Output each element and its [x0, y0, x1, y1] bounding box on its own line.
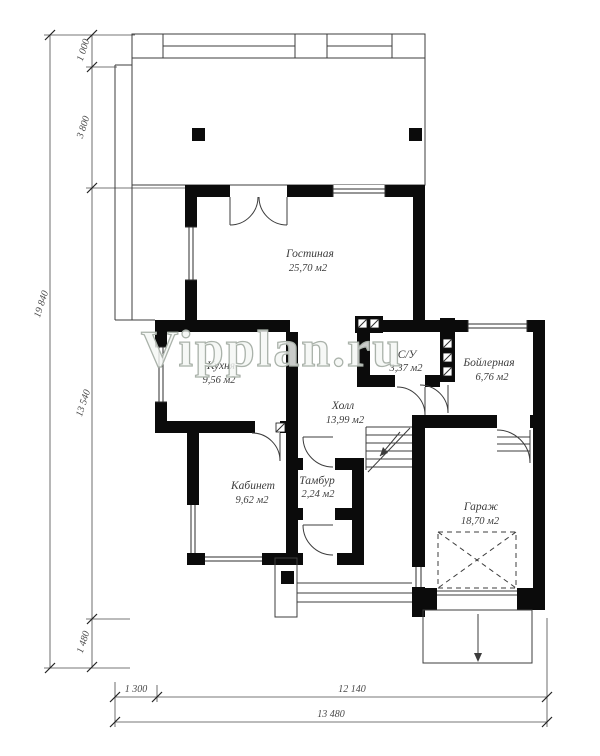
svg-text:Холл: Холл — [331, 400, 354, 412]
window-living-left — [185, 227, 197, 280]
dim-3800: 3 800 — [75, 115, 93, 141]
svg-text:Тамбур: Тамбур — [299, 475, 335, 487]
terrace — [115, 34, 425, 320]
dim-12140: 12 140 — [338, 684, 366, 695]
svg-text:25,70 м2: 25,70 м2 — [289, 263, 328, 274]
floor-plan-canvas: 19 840 1 000 3 800 13 540 1 480 1 300 12… — [0, 0, 600, 756]
svg-text:2,24 м2: 2,24 м2 — [302, 489, 336, 500]
svg-text:9,62 м2: 9,62 м2 — [236, 495, 270, 506]
room-label-living: Гостиная 25,70 м2 — [285, 248, 334, 274]
window-study-left — [187, 505, 199, 553]
svg-text:Кабинет: Кабинет — [230, 480, 275, 492]
svg-text:13,99 м2: 13,99 м2 — [326, 415, 365, 426]
porch — [275, 558, 412, 617]
terrace-column — [192, 128, 205, 141]
staircase — [366, 427, 412, 472]
dim-total-height: 19 840 — [32, 289, 51, 319]
driveway — [423, 610, 532, 663]
window-garage-left — [412, 567, 425, 587]
room-label-hall: Холл 13,99 м2 — [326, 400, 365, 426]
window-study-bottom — [205, 553, 262, 565]
terrace-column — [409, 128, 422, 141]
floor-plan-page: 19 840 1 000 3 800 13 540 1 480 1 300 12… — [0, 0, 600, 756]
svg-text:18,70 м2: 18,70 м2 — [461, 516, 500, 527]
svg-text:Гостиная: Гостиная — [285, 248, 334, 260]
watermark: Vipplan.ru — [141, 321, 403, 378]
room-label-garage: Гараж 18,70 м2 — [461, 501, 500, 527]
room-label-boiler: Бойлерная 6,76 м2 — [462, 356, 514, 383]
dim-1000: 1 000 — [75, 38, 92, 63]
svg-text:6,76 м2: 6,76 м2 — [476, 372, 510, 383]
porch-column — [281, 571, 294, 584]
dim-total-width: 13 480 — [317, 709, 345, 720]
window-living-top — [333, 185, 385, 197]
garage-details — [423, 532, 532, 663]
svg-text:Гараж: Гараж — [463, 501, 499, 513]
dim-1300: 1 300 — [125, 684, 148, 695]
window-boiler — [468, 320, 527, 332]
room-label-vestibule: Тамбур 2,24 м2 — [299, 475, 335, 500]
dim-13540: 13 540 — [74, 388, 93, 418]
room-label-study: Кабинет 9,62 м2 — [230, 480, 275, 506]
svg-text:Бойлерная: Бойлерная — [462, 356, 514, 369]
dim-1480: 1 480 — [75, 630, 92, 655]
